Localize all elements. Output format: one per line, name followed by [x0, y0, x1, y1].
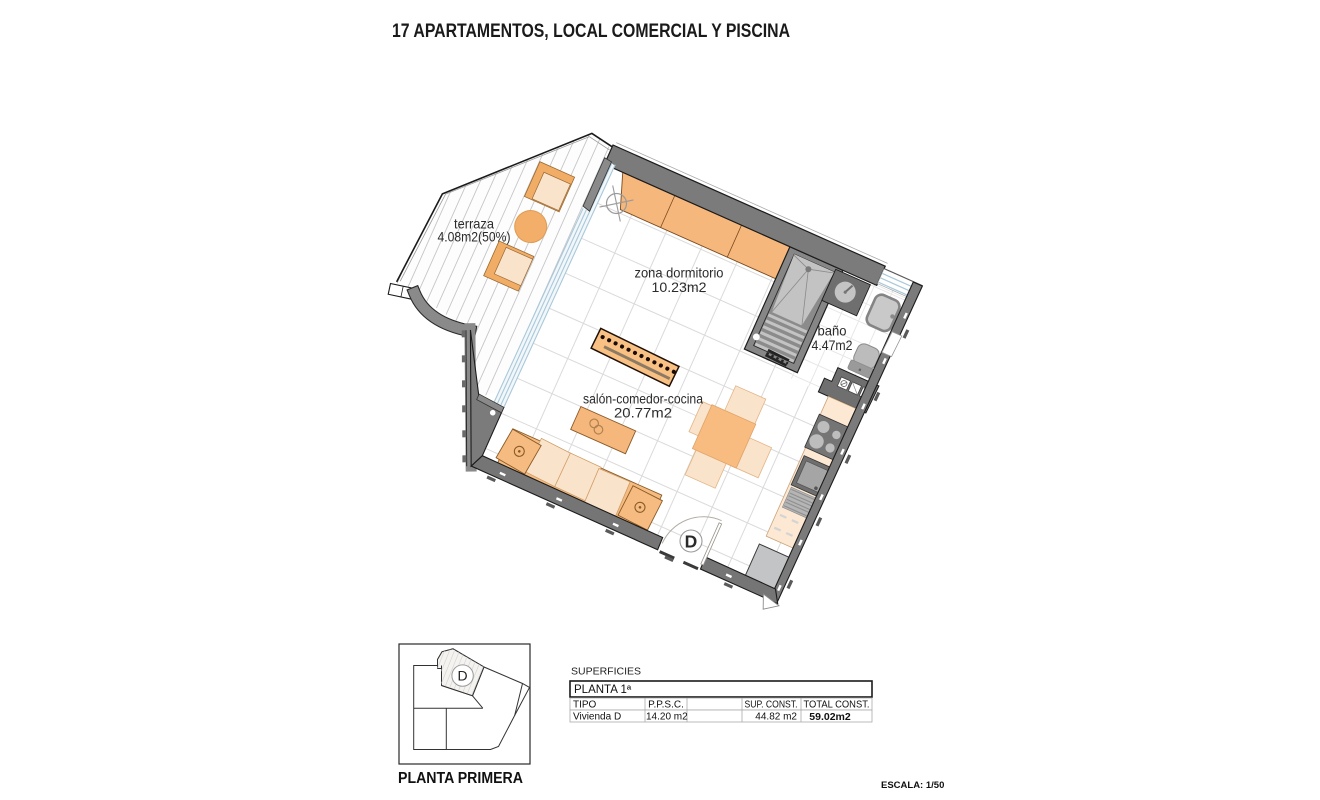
svg-text:ESCALA: 1/50: ESCALA: 1/50: [881, 780, 944, 791]
svg-text:44.82 m2: 44.82 m2: [755, 712, 797, 723]
svg-text:SUPERFICIES: SUPERFICIES: [571, 666, 641, 678]
svg-text:P.P.S.C.: P.P.S.C.: [648, 700, 684, 711]
svg-text:14.20 m2: 14.20 m2: [646, 712, 688, 723]
svg-text:20.77m2: 20.77m2: [614, 405, 672, 421]
svg-text:D: D: [685, 532, 698, 552]
svg-text:59.02m2: 59.02m2: [809, 711, 851, 723]
svg-text:17 APARTAMENTOS, LOCAL COMERCI: 17 APARTAMENTOS, LOCAL COMERCIAL Y PISCI…: [392, 20, 790, 42]
svg-text:Vivienda D: Vivienda D: [573, 712, 621, 723]
svg-text:4.47m2: 4.47m2: [812, 337, 853, 353]
svg-text:TIPO: TIPO: [573, 700, 597, 711]
svg-text:10.23m2: 10.23m2: [652, 279, 707, 295]
svg-text:4.08m2(50%): 4.08m2(50%): [438, 229, 511, 245]
svg-text:SUP. CONST.: SUP. CONST.: [745, 700, 798, 711]
svg-text:D: D: [458, 668, 468, 684]
svg-text:PLANTA 1ª: PLANTA 1ª: [574, 684, 632, 696]
svg-text:PLANTA PRIMERA: PLANTA PRIMERA: [398, 770, 523, 787]
svg-text:TOTAL CONST.: TOTAL CONST.: [804, 700, 870, 711]
